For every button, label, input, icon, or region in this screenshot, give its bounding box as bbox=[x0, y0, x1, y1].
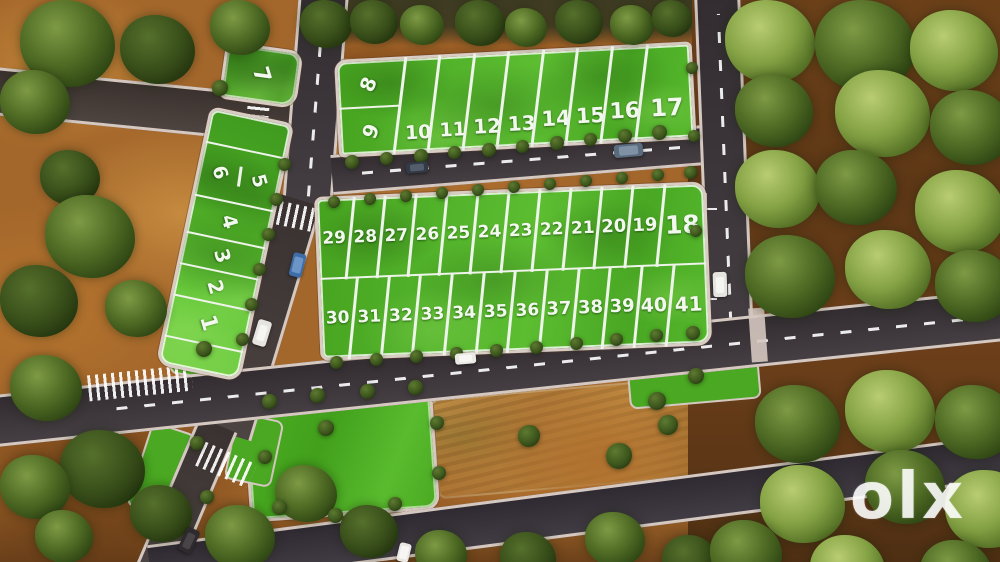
tree bbox=[505, 8, 547, 47]
plot-number: 21 bbox=[571, 219, 595, 237]
plot-number: 17 bbox=[650, 94, 685, 120]
tree bbox=[745, 235, 835, 318]
plot-13: 13 bbox=[501, 52, 540, 146]
plot-32: 32 bbox=[384, 276, 419, 355]
plot-number: 2 bbox=[204, 278, 227, 297]
tree bbox=[105, 280, 167, 337]
tree bbox=[735, 75, 813, 147]
plot-24: 24 bbox=[472, 192, 506, 271]
tree bbox=[0, 265, 78, 337]
tree bbox=[845, 230, 931, 309]
tree bbox=[350, 0, 398, 44]
plot-number: 8 bbox=[356, 74, 380, 94]
plot-number: 32 bbox=[389, 307, 413, 325]
plot-number: 40 bbox=[640, 295, 667, 315]
plot-11: 11 bbox=[432, 56, 471, 150]
tree bbox=[10, 355, 82, 421]
plot-19: 19 bbox=[628, 186, 662, 265]
parking-mark bbox=[705, 193, 717, 210]
tree bbox=[845, 370, 935, 453]
plot-30: 30 bbox=[320, 279, 355, 358]
plot-number: 22 bbox=[540, 221, 564, 239]
plot-number: 3 bbox=[211, 246, 234, 265]
plot-21: 21 bbox=[566, 189, 600, 268]
tree bbox=[130, 485, 192, 542]
tree bbox=[300, 0, 352, 48]
plot-6: 6 bbox=[198, 159, 241, 186]
plot-27: 27 bbox=[379, 196, 413, 275]
plot-number: 38 bbox=[578, 298, 604, 317]
plot-25: 25 bbox=[441, 194, 475, 273]
plot-number: 6 bbox=[209, 163, 231, 181]
tree bbox=[652, 0, 692, 37]
plot-number: 31 bbox=[357, 308, 381, 326]
tree bbox=[0, 70, 70, 134]
bush bbox=[518, 425, 540, 447]
plot-number: 26 bbox=[415, 226, 439, 244]
plot-number: 24 bbox=[477, 223, 501, 241]
plot-34: 34 bbox=[447, 273, 482, 352]
plot-col-8-9: 89 bbox=[337, 60, 402, 155]
plot-17: 17 bbox=[639, 44, 694, 138]
plot-number: 25 bbox=[446, 224, 470, 242]
plot-26: 26 bbox=[410, 195, 444, 274]
tree bbox=[340, 505, 398, 558]
plot-36: 36 bbox=[510, 271, 545, 350]
plot-number: 41 bbox=[674, 294, 703, 315]
tree bbox=[835, 70, 930, 157]
tree bbox=[45, 195, 135, 278]
van-south-road bbox=[455, 352, 477, 365]
plot-number: 19 bbox=[632, 216, 658, 235]
plot-number: 34 bbox=[452, 304, 476, 322]
bush bbox=[658, 415, 678, 435]
bush bbox=[606, 443, 632, 469]
plot-number: 20 bbox=[601, 217, 627, 236]
bush bbox=[648, 392, 666, 410]
olx-watermark: olx bbox=[850, 460, 966, 534]
plot-29: 29 bbox=[317, 199, 351, 278]
tree bbox=[400, 5, 444, 45]
plot-layout-aerial-render: 7 891011121314151617 2928272625242322212… bbox=[0, 0, 1000, 562]
plot-18: 18 bbox=[659, 184, 706, 264]
plot-block-top: 891011121314151617 bbox=[334, 41, 697, 158]
bush bbox=[616, 172, 628, 184]
tree bbox=[35, 510, 93, 562]
plot-31: 31 bbox=[352, 277, 387, 356]
tree bbox=[735, 150, 820, 228]
plot-number: 4 bbox=[218, 212, 241, 231]
bush bbox=[652, 169, 664, 181]
plot-20: 20 bbox=[597, 187, 631, 266]
plot-8: 8 bbox=[337, 60, 399, 110]
plot-number: 7 bbox=[248, 64, 274, 85]
plot-number: 27 bbox=[384, 227, 408, 245]
plot-5: 5 bbox=[237, 167, 280, 194]
tree bbox=[120, 15, 195, 84]
plot-10: 10 bbox=[397, 58, 436, 152]
tree bbox=[555, 0, 603, 44]
car-white-right-road bbox=[713, 272, 728, 297]
car-road-mid bbox=[406, 161, 429, 174]
plot-number: 37 bbox=[546, 300, 572, 319]
plot-number: 1 bbox=[195, 313, 220, 334]
tree bbox=[815, 150, 897, 225]
plot-15: 15 bbox=[570, 49, 609, 143]
plot-number: 33 bbox=[420, 305, 444, 323]
tree bbox=[755, 385, 840, 463]
plot-number: 23 bbox=[508, 222, 532, 240]
plot-number: 35 bbox=[484, 303, 508, 321]
plot-number: 28 bbox=[353, 228, 377, 246]
plot-number: 5 bbox=[248, 172, 270, 190]
plot-14: 14 bbox=[535, 51, 574, 145]
tree bbox=[725, 0, 815, 83]
tree bbox=[60, 430, 145, 508]
truck-road-mid bbox=[613, 143, 643, 158]
plot-number: 29 bbox=[322, 229, 346, 247]
plot-number: 30 bbox=[326, 309, 350, 327]
tree bbox=[610, 5, 654, 45]
tree bbox=[455, 0, 505, 46]
tree bbox=[210, 0, 270, 55]
plot-37: 37 bbox=[542, 270, 577, 349]
bush bbox=[432, 466, 446, 480]
plot-38: 38 bbox=[573, 268, 608, 347]
plot-23: 23 bbox=[504, 191, 538, 270]
plot-number: 39 bbox=[609, 297, 635, 316]
plot-number: 36 bbox=[515, 302, 539, 320]
plot-12: 12 bbox=[466, 54, 505, 148]
plot-16: 16 bbox=[604, 47, 643, 141]
plot-28: 28 bbox=[348, 197, 382, 276]
bush bbox=[200, 490, 214, 504]
bush bbox=[430, 416, 444, 430]
tree bbox=[910, 10, 998, 91]
plot-39: 39 bbox=[605, 267, 640, 346]
plot-number: 9 bbox=[359, 120, 383, 140]
plot-35: 35 bbox=[478, 272, 513, 351]
tree bbox=[915, 170, 1000, 253]
plot-22: 22 bbox=[535, 190, 569, 269]
plot-33: 33 bbox=[415, 275, 450, 354]
